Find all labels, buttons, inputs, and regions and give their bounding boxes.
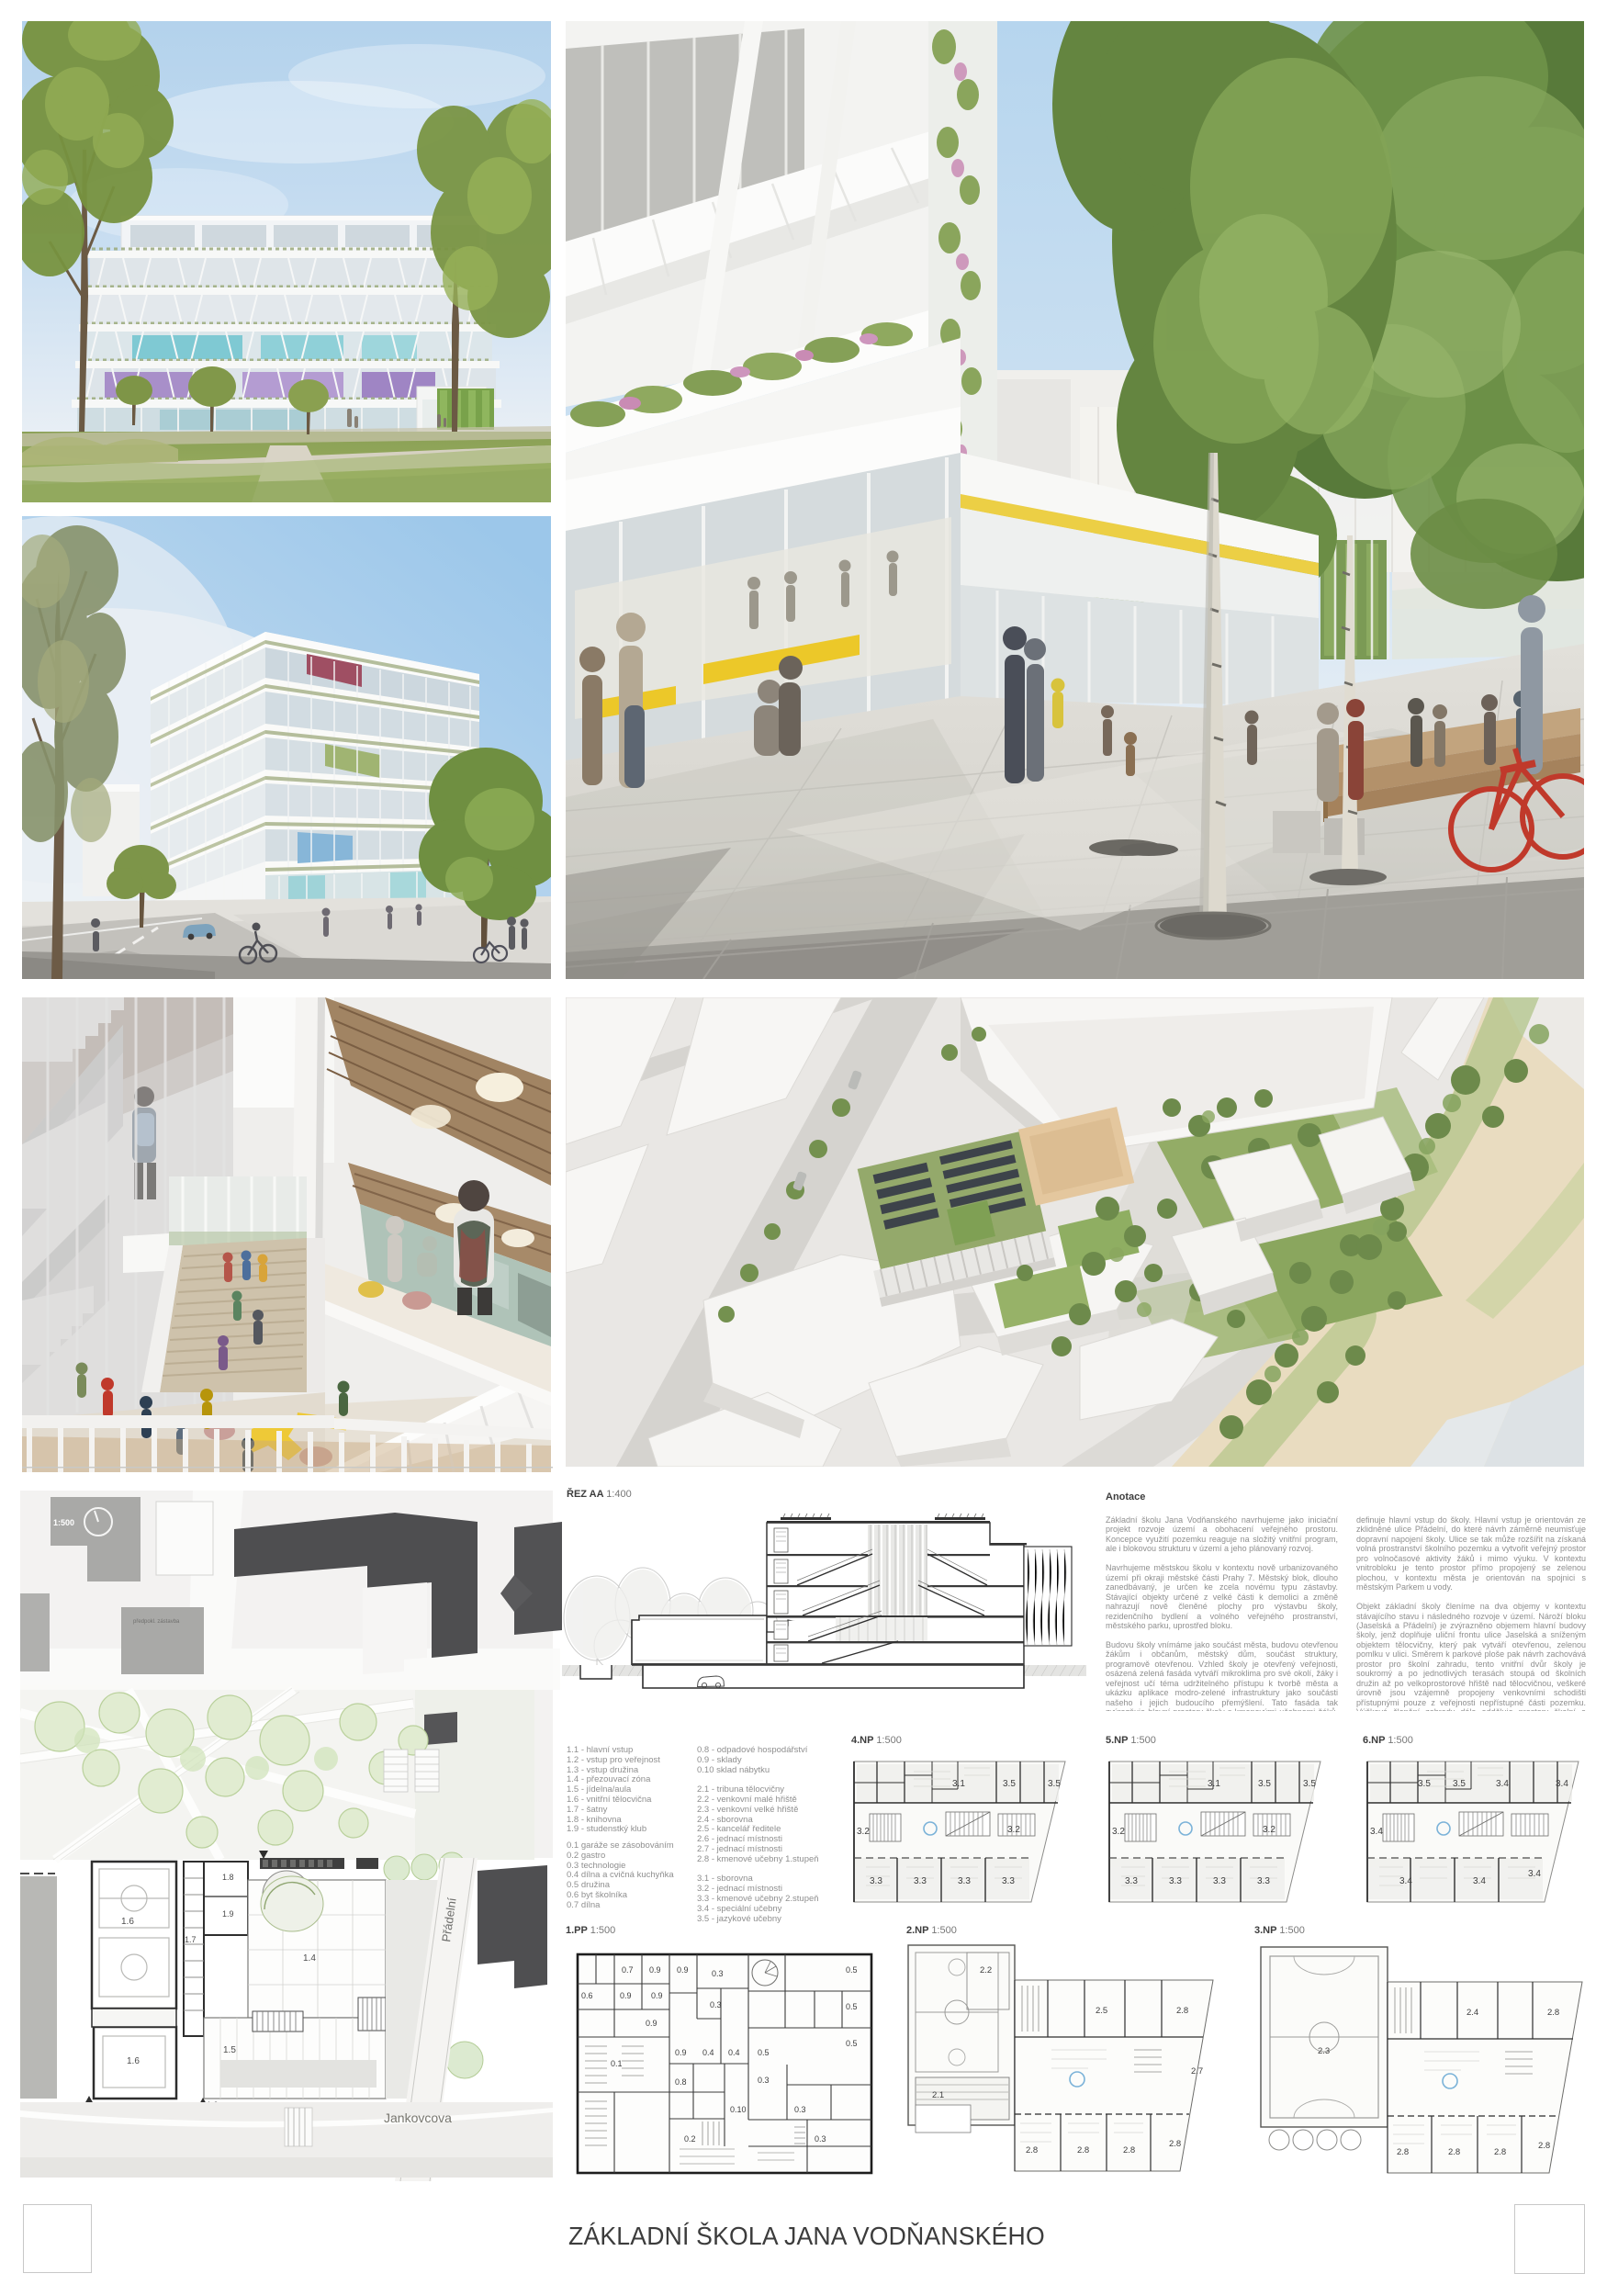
svg-text:3.3: 3.3 [1213,1876,1226,1886]
svg-text:předpokl. zástavba: předpokl. zástavba [133,1619,180,1625]
svg-text:3.5: 3.5 [1418,1779,1431,1789]
svg-text:3.3: 3.3 [1125,1876,1138,1886]
svg-text:2.8: 2.8 [1448,2147,1460,2157]
svg-text:3.5: 3.5 [1453,1779,1466,1789]
svg-text:2.8: 2.8 [1176,2006,1188,2016]
svg-text:2.4: 2.4 [1467,2008,1478,2018]
svg-text:0.4: 0.4 [728,2048,740,2057]
svg-text:3.3: 3.3 [914,1876,927,1886]
svg-text:Jankovcova: Jankovcova [384,2110,452,2125]
svg-text:2.8: 2.8 [1494,2147,1506,2157]
svg-text:0.3: 0.3 [710,2000,722,2009]
svg-text:3.2: 3.2 [1007,1825,1020,1835]
svg-text:3.3: 3.3 [958,1876,971,1886]
svg-text:0.5: 0.5 [846,2002,858,2011]
svg-text:0.1: 0.1 [611,2059,623,2068]
svg-text:0.3: 0.3 [758,2076,770,2085]
svg-text:3.2: 3.2 [1263,1825,1275,1835]
svg-text:3.3: 3.3 [1257,1876,1270,1886]
svg-text:2.8: 2.8 [1169,2139,1181,2149]
svg-text:3.4: 3.4 [1399,1876,1412,1886]
svg-text:3.4: 3.4 [1370,1827,1383,1837]
svg-text:2.3: 2.3 [1318,2046,1330,2056]
svg-text:2.5: 2.5 [1096,2006,1107,2016]
svg-text:1.7: 1.7 [185,1935,197,1944]
svg-text:2.8: 2.8 [1026,2145,1038,2155]
svg-text:2.8: 2.8 [1547,2008,1559,2018]
svg-text:0.3: 0.3 [815,2134,826,2144]
svg-text:3.5: 3.5 [1048,1779,1061,1789]
svg-text:2.1: 2.1 [932,2090,944,2100]
svg-text:0.9: 0.9 [651,1991,663,2000]
svg-text:2.7: 2.7 [1191,2066,1203,2077]
svg-text:0.9: 0.9 [677,1965,689,1975]
svg-text:0.5: 0.5 [846,2039,858,2048]
svg-text:3.2: 3.2 [1112,1827,1125,1837]
svg-text:3.5: 3.5 [1003,1779,1016,1789]
svg-text:3.5: 3.5 [1303,1779,1316,1789]
svg-text:0.6: 0.6 [581,1991,593,2000]
svg-text:0.5: 0.5 [846,1965,858,1975]
svg-text:1.4: 1.4 [303,1953,316,1964]
svg-text:1.5: 1.5 [223,2045,236,2055]
svg-text:1.8: 1.8 [222,1873,234,1882]
svg-text:2.8: 2.8 [1538,2141,1550,2151]
svg-text:0.3: 0.3 [794,2105,806,2114]
svg-text:3.4: 3.4 [1496,1779,1509,1789]
svg-text:0.9: 0.9 [646,2019,657,2028]
svg-text:2.2: 2.2 [980,1965,992,1975]
svg-text:2.8: 2.8 [1123,2145,1135,2155]
svg-text:3.2: 3.2 [857,1827,870,1837]
svg-text:3.1: 3.1 [1208,1779,1220,1789]
svg-text:3.5: 3.5 [1258,1779,1271,1789]
svg-text:0.4: 0.4 [702,2048,714,2057]
svg-text:0.3: 0.3 [712,1969,724,1978]
svg-text:3.4: 3.4 [1528,1869,1541,1879]
svg-text:1.6: 1.6 [127,2056,140,2066]
svg-text:1.6: 1.6 [121,1917,134,1927]
svg-text:3.4: 3.4 [1473,1876,1486,1886]
svg-text:0.8: 0.8 [675,2077,687,2087]
svg-text:0.9: 0.9 [675,2048,687,2057]
svg-text:2.8: 2.8 [1077,2145,1089,2155]
svg-text:3.3: 3.3 [1002,1876,1015,1886]
svg-text:1:500: 1:500 [53,1518,74,1527]
svg-text:1.9: 1.9 [222,1909,234,1919]
svg-text:0.5: 0.5 [758,2048,770,2057]
svg-text:3.3: 3.3 [870,1876,882,1886]
svg-text:3.4: 3.4 [1556,1779,1568,1789]
svg-text:0.9: 0.9 [620,1991,632,2000]
svg-text:0.7: 0.7 [622,1965,634,1975]
svg-text:0.2: 0.2 [684,2134,696,2144]
svg-text:2.8: 2.8 [1397,2147,1409,2157]
svg-text:3.1: 3.1 [952,1779,965,1789]
svg-text:3.3: 3.3 [1169,1876,1182,1886]
svg-text:0.9: 0.9 [649,1965,661,1975]
svg-text:0.10: 0.10 [730,2105,747,2114]
